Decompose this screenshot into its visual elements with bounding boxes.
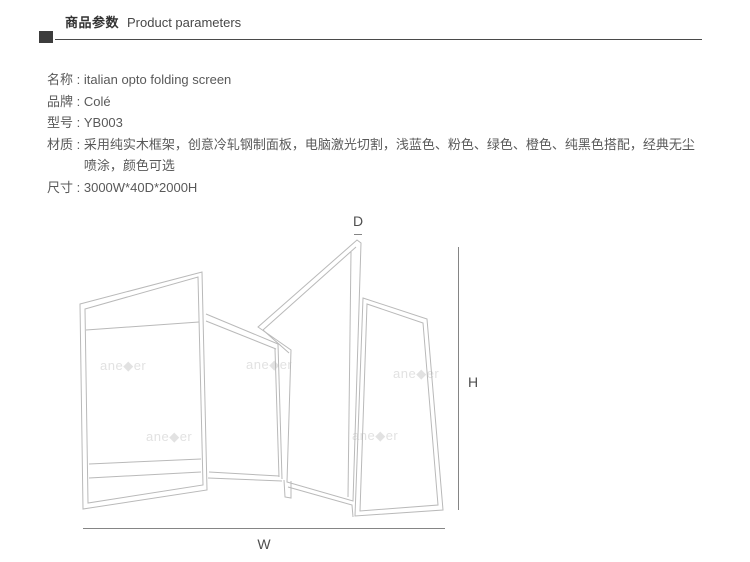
watermark-text: ane◆er xyxy=(352,428,398,443)
screen-panel-4 xyxy=(355,298,443,516)
depth-label: D xyxy=(353,213,363,229)
dimension-marks: D H W xyxy=(83,213,478,552)
header-square-icon xyxy=(39,31,53,43)
param-row-brand: 品牌 : Colé xyxy=(47,91,707,113)
width-label: W xyxy=(257,536,271,552)
watermark-text: ane◆er xyxy=(146,429,192,444)
screen-panel-1 xyxy=(80,272,207,509)
param-label: 材质 xyxy=(47,134,73,156)
section-title-zh: 商品参数 xyxy=(65,15,119,30)
param-separator: : xyxy=(73,112,84,134)
param-value: 3000W*40D*2000H xyxy=(84,177,704,199)
param-value: 采用纯实木框架，创意冷轧钢制面板，电脑激光切割，浅蓝色、粉色、绿色、橙色、纯黑色… xyxy=(84,134,704,177)
param-value: italian opto folding screen xyxy=(84,69,704,91)
param-separator: : xyxy=(73,69,84,91)
watermark-text: ane◆er xyxy=(100,358,146,373)
section-title-en: Product parameters xyxy=(127,15,241,30)
screen-panel-2 xyxy=(206,314,282,481)
param-row-material: 材质 : 采用纯实木框架，创意冷轧钢制面板，电脑激光切割，浅蓝色、粉色、绿色、橙… xyxy=(47,134,707,177)
param-label: 型号 xyxy=(47,112,73,134)
height-label: H xyxy=(468,374,478,390)
product-parameters: 名称 : italian opto folding screen 品牌 : Co… xyxy=(47,69,707,198)
watermark-text: ane◆er xyxy=(246,357,292,372)
header-divider xyxy=(55,39,702,40)
watermarks: ane◆er ane◆er ane◆er ane◆er ane◆er xyxy=(100,357,439,444)
folding-screen-diagram: ane◆er ane◆er ane◆er ane◆er ane◆er xyxy=(70,205,490,560)
section-title: 商品参数Product parameters xyxy=(65,13,241,33)
param-separator: : xyxy=(73,134,84,156)
param-value: YB003 xyxy=(84,112,704,134)
param-separator: : xyxy=(73,91,84,113)
param-row-model: 型号 : YB003 xyxy=(47,112,707,134)
param-value: Colé xyxy=(84,91,704,113)
param-separator: : xyxy=(73,177,84,199)
param-row-size: 尺寸 : 3000W*40D*2000H xyxy=(47,177,707,199)
param-label: 品牌 xyxy=(47,91,73,113)
param-row-name: 名称 : italian opto folding screen xyxy=(47,69,707,91)
param-label: 名称 xyxy=(47,69,73,91)
param-label: 尺寸 xyxy=(47,177,73,199)
